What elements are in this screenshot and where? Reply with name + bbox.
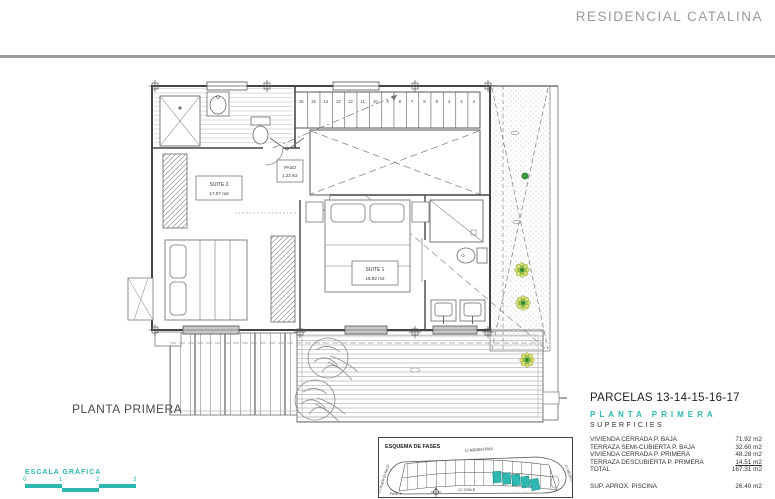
svg-text:13: 13 (336, 99, 341, 104)
stair-numbers: 16 15 14 13 12 11 10 9 8 7 6 5 4 3 2 (299, 99, 476, 104)
project-title: RESIDENCIAL CATALINA (576, 9, 763, 24)
plan-caption: PLANTA PRIMERA (72, 402, 182, 416)
shower-icon (430, 200, 483, 242)
sink-icon (207, 92, 229, 116)
svg-text:12: 12 (348, 99, 353, 104)
svg-text:1.23 m2: 1.23 m2 (282, 173, 298, 178)
floor-plan-drawing: 16 15 14 13 12 11 10 9 8 7 6 5 4 3 2 (115, 70, 585, 445)
parcels-info: PARCELAS 13-14-15-16-17 PLANTA PRIMERA S… (590, 392, 762, 491)
suite2-label: SUITE 2 17.07 m2 (196, 176, 242, 200)
street-label-top: C/ ARGENTINA (465, 446, 494, 453)
superficies-heading: SUPERFICIES (590, 422, 762, 429)
scale-segment (62, 488, 99, 492)
surface-row: VIVIENDA CERRADA P. PRIMERA 48.28 m2 (590, 451, 762, 459)
svg-text:PASO: PASO (284, 165, 296, 170)
window-planter (128, 278, 153, 320)
closet (163, 154, 187, 228)
header-divider (0, 55, 775, 58)
surface-table: VIVIENDA CERRADA P. BAJA 71.92 m2 TERRAZ… (590, 436, 762, 474)
scale-tick: 2 (96, 477, 99, 483)
svg-text:14: 14 (323, 99, 328, 104)
svg-text:17.07 m2: 17.07 m2 (209, 191, 229, 196)
phases-scheme: ESQUEMA DE FASES C/ ARGENTINA C/ CHILE C… (378, 437, 573, 498)
plant-icon (515, 263, 530, 278)
street-label-bottom: C/ CHILE (459, 487, 476, 492)
svg-text:15: 15 (311, 99, 316, 104)
suite1-label: SUITE 1 18.82 m2 (352, 261, 398, 285)
parcels-subtitle: PLANTA PRIMERA (590, 410, 762, 419)
scale-tick: 0 (23, 477, 26, 483)
surface-row: TERRAZA SEMI-CUBIERTA P. BAJA 32.60 m2 (590, 444, 762, 452)
sheet: RESIDENCIAL CATALINA (0, 0, 775, 499)
surface-row-total: TOTAL 167.31 m2 (590, 466, 762, 474)
piscina-row: SUP. APROX. PISCINA 26.40 m2 (590, 483, 762, 491)
bed-icon (165, 240, 247, 320)
svg-text:18.82 m2: 18.82 m2 (365, 276, 385, 281)
fase-label: FASE 1 (390, 492, 402, 496)
fases-title: ESQUEMA DE FASES (385, 444, 441, 450)
svg-text:SUITE 2: SUITE 2 (210, 182, 229, 188)
svg-text:11: 11 (361, 99, 366, 104)
scale-segment (25, 484, 62, 488)
svg-text:16: 16 (299, 99, 304, 104)
scale-label: ESCALA GRÁFICA (25, 469, 155, 476)
tree-icon (522, 173, 528, 179)
scale-segment (99, 484, 136, 488)
scale-bar (25, 484, 137, 493)
svg-text:SUITE 1: SUITE 1 (366, 267, 385, 273)
plant-icon (516, 296, 531, 311)
paso-label: PASO 1.23 m2 (277, 160, 303, 182)
svg-text:10: 10 (373, 99, 378, 104)
parcels-title: PARCELAS 13-14-15-16-17 (590, 392, 762, 404)
surface-row: TERRAZA DESCUBIERTA P. PRIMERA 14.51 m2 (590, 459, 762, 467)
wardrobe (271, 236, 295, 322)
phases-drawing: ESQUEMA DE FASES C/ ARGENTINA C/ CHILE C… (379, 438, 572, 497)
surface-row: VIVIENDA CERRADA P. BAJA 71.92 m2 (590, 436, 762, 444)
plant-icon (520, 353, 535, 368)
scale-tick: 3 (133, 477, 136, 483)
scale-ticks: 0 1 2 3 (25, 477, 155, 484)
scale-tick: 1 (59, 477, 62, 483)
toilet-icon (251, 117, 270, 144)
graphic-scale: ESCALA GRÁFICA 0 1 2 3 (25, 469, 155, 493)
toilet-icon (457, 248, 487, 263)
floor-plan: 16 15 14 13 12 11 10 9 8 7 6 5 4 3 2 (115, 70, 585, 445)
